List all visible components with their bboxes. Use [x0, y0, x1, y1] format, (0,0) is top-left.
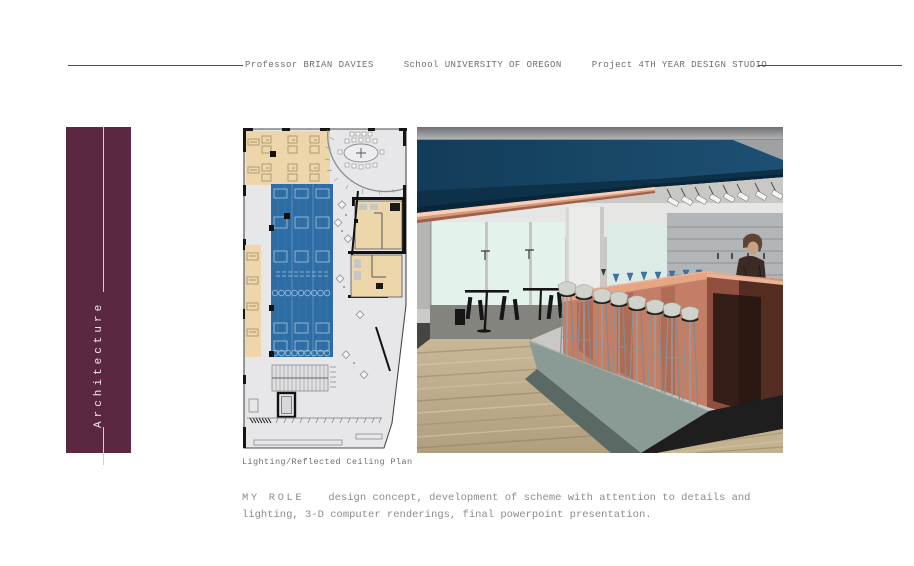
portfolio-page: Professor BRIAN DAVIES School UNIVERSITY… [0, 0, 914, 566]
role-line-1: MY ROLEdesign concept, development of sc… [242, 490, 802, 507]
header-school: School UNIVERSITY OF OREGON [404, 60, 562, 70]
header-rule-right [758, 65, 902, 66]
role-label: MY ROLE [242, 492, 304, 504]
role-paragraph: MY ROLEdesign concept, development of sc… [242, 490, 802, 524]
section-tab-architecture: Architecture [66, 127, 131, 453]
section-label: Architecture [93, 292, 105, 428]
plan-caption: Lighting/Reflected Ceiling Plan [242, 457, 413, 467]
header-professor: Professor BRIAN DAVIES [245, 60, 374, 70]
header: Professor BRIAN DAVIES School UNIVERSITY… [245, 60, 767, 70]
sidebar-line-bottom [103, 427, 104, 465]
floor-plan-graphic [242, 127, 408, 455]
role-text-1: design concept, development of scheme wi… [328, 492, 750, 504]
header-rule-left [68, 65, 243, 66]
role-line-2: lighting, 3-D computer renderings, final… [242, 507, 802, 524]
header-project: Project 4TH YEAR DESIGN STUDIO [592, 60, 768, 70]
interior-render-graphic [417, 127, 783, 453]
sidebar-line-top [103, 127, 104, 292]
